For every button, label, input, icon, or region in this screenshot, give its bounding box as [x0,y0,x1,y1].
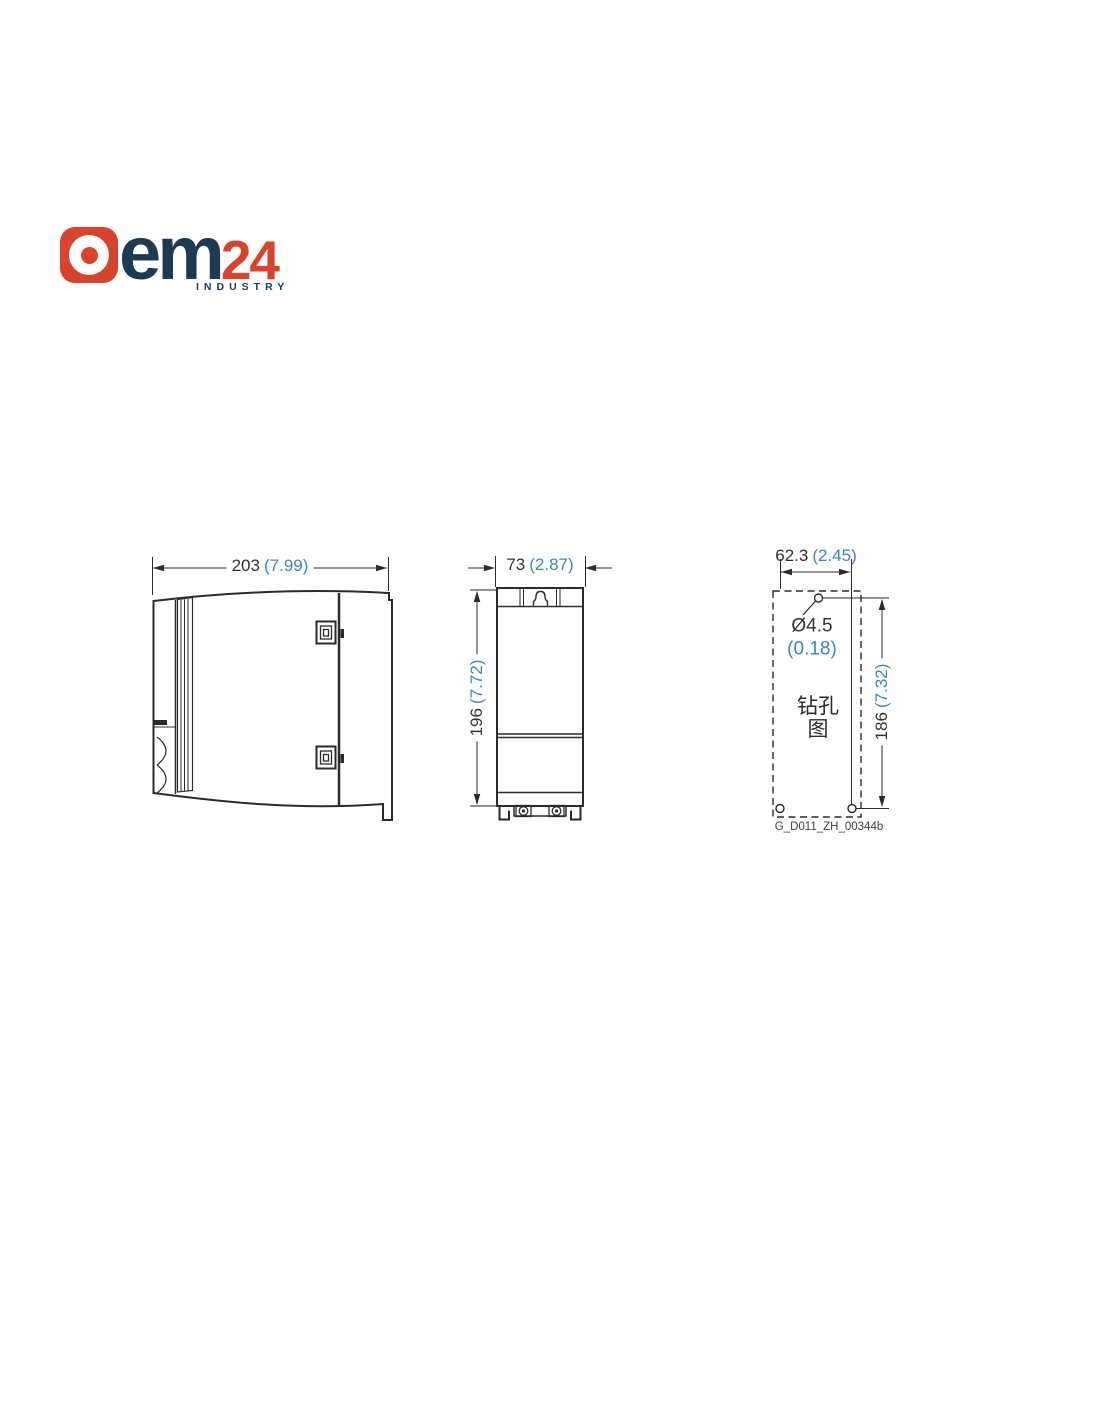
drill-hole-bottom-right [848,805,856,813]
inch-value: (2.45) [812,546,856,565]
front-body-outline [497,588,583,806]
drill-hole-top [815,594,823,602]
clip-outer [317,747,336,769]
figure-code: G_D011_ZH_00344b [775,821,883,833]
dimension-arrow [781,569,792,576]
inch-value: (0.18) [787,639,837,660]
side-view-width-label: 203(7.99) [227,556,314,576]
front-view-height-label: 196(7.72) [467,655,487,742]
panel-notch [154,720,167,725]
clip-inner [324,630,329,637]
dimension-arrow [376,565,387,572]
mm-value: 203 [232,556,260,575]
dimension-arrow [474,794,481,805]
side-body-outline [154,591,393,820]
drill-view-width-label: 62.3(2.45) [770,546,862,566]
drill-hole-diameter-inch-label: (0.18) [787,639,837,662]
panel-arcs [157,737,166,793]
clip-tab [341,754,345,763]
dimension-arrow [474,591,481,602]
inch-value: (2.87) [529,555,573,574]
screw-dot [555,809,558,812]
mm-value: Ø4.5 [791,616,832,637]
front-view-width-label: 73(2.87) [501,555,578,575]
clip-outer [317,622,336,644]
dimension-arrow [879,796,886,807]
hole-leader-line [803,601,816,615]
inch-value: (7.72) [467,660,486,704]
foot-hook-left [500,806,510,820]
keyhole-shape [534,592,548,606]
clip-tab [341,629,345,638]
dimension-arrow [879,599,886,610]
dimension-arrow [839,569,850,576]
mm-value: 73 [506,555,525,574]
clip-mid [321,751,332,764]
drill-caption-line1: 钻孔 [797,695,839,719]
dimension-arrow [153,565,164,572]
drill-hole-diameter-label: Ø4.5 [791,616,832,639]
product-technical-drawing: em 24 INDUSTRY [0,0,1100,1422]
mid-divider-lines [497,734,583,738]
inch-value: (7.32) [872,664,891,708]
drill-hole-bottom-left [776,805,784,813]
drill-caption-line2: 图 [808,718,829,742]
screw-dot [522,809,525,812]
drill-view-height-label: 186(7.32) [872,659,892,746]
inch-value: (7.99) [264,556,308,575]
clip-inner [324,755,329,762]
vent-rib-lines [181,599,188,791]
clip-mid [321,626,332,639]
side-view-art [153,557,393,820]
mm-value: 62.3 [775,546,808,565]
dimension-arrow [585,565,596,572]
mm-value: 186 [872,712,891,740]
front-view-art [468,556,612,820]
foot-hook-right [571,806,581,820]
dimension-arrow [484,565,495,572]
top-band-dividers [520,588,560,606]
dimension-drawing-art [0,0,1100,1422]
mm-value: 196 [467,708,486,736]
